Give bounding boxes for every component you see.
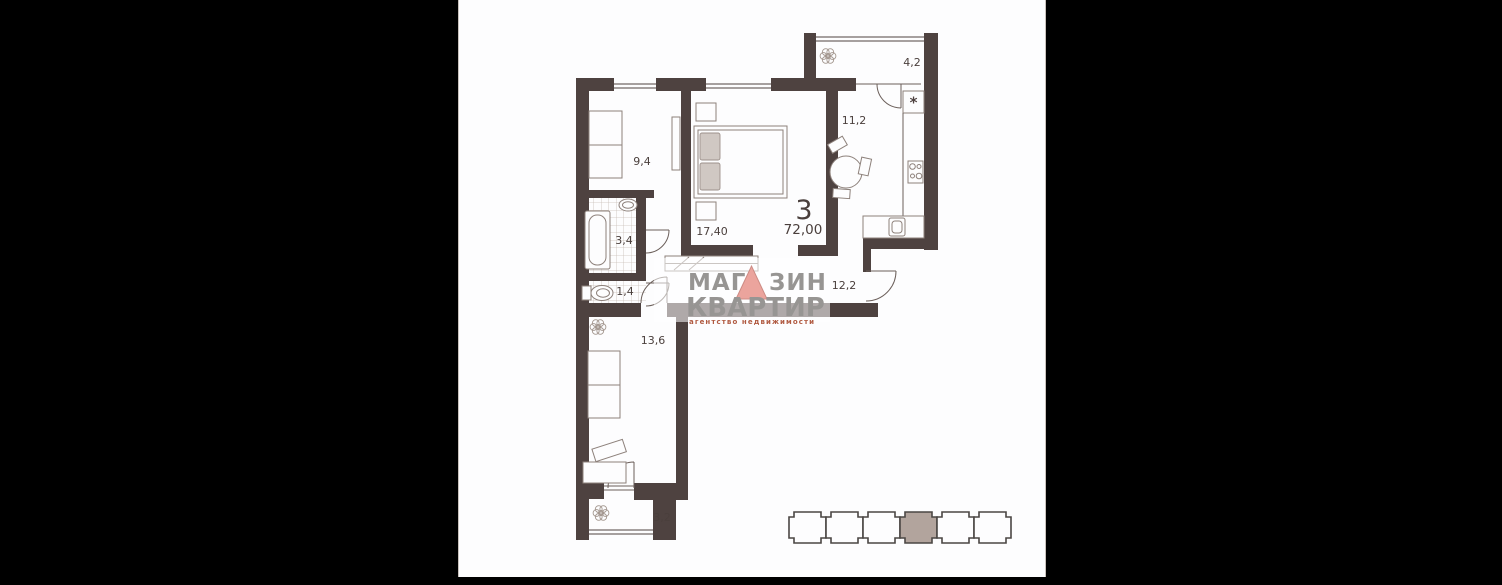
building-section-5	[937, 512, 974, 543]
floor-plan-svg: *	[459, 0, 1045, 577]
building-section-6	[974, 512, 1011, 543]
plant-loggia-top-icon	[820, 49, 836, 64]
page-background: { "page": { "background": "#000000", "pa…	[0, 0, 1502, 585]
window-loggia-bottom	[589, 530, 653, 534]
nightstand-top	[696, 103, 716, 121]
fridge: *	[903, 91, 924, 113]
kitchen-sink-counter	[863, 216, 924, 238]
plant-loggia-bottom-icon	[593, 506, 609, 521]
dining-table	[828, 136, 872, 198]
room-label-hall: 12,2	[832, 279, 857, 292]
bathtub	[585, 211, 610, 269]
window-bedroom	[706, 84, 771, 88]
nightstand-bottom	[696, 202, 716, 220]
stove	[908, 161, 923, 183]
room-label-living: 9,4	[633, 155, 651, 168]
room-label-room-13-6: 13,6	[641, 334, 666, 347]
toilet	[582, 286, 613, 301]
washbasin	[619, 199, 637, 211]
sofa-living	[589, 111, 622, 178]
building-section-3	[863, 512, 900, 543]
shelf-living	[672, 117, 680, 170]
plant-room-13-6-icon	[590, 320, 606, 335]
window-living	[614, 84, 656, 88]
plan-panel: *	[458, 0, 1046, 577]
door-entrance	[866, 271, 896, 301]
fridge-symbol: *	[910, 94, 918, 112]
building-section-4-highlighted	[900, 512, 937, 543]
room-label-bedroom: 17,40	[696, 225, 728, 238]
watermark-logo: МАГ ЗИН КВАРТИР агентство недвижимости	[654, 258, 830, 326]
window-loggia-top	[816, 37, 924, 41]
room-label-loggia-top: 4,2	[903, 56, 921, 69]
double-bed	[694, 126, 787, 198]
door-bathroom	[646, 230, 669, 253]
room-label-loggia-bottom: 3,2	[653, 511, 671, 524]
apartment-total-area: 72,00	[784, 222, 823, 238]
desk-with-chair	[583, 439, 626, 483]
room-label-wc: 1,4	[616, 285, 634, 298]
building-section-2	[826, 512, 863, 543]
room-label-kitchen: 11,2	[842, 114, 867, 127]
room-label-bathroom: 3,4	[615, 234, 633, 247]
watermark-line3: агентство недвижимости	[689, 318, 815, 326]
building-section-1	[789, 512, 826, 543]
building-position-indicator	[789, 512, 1011, 543]
wardrobe-13-6	[588, 351, 620, 418]
door-kitchen-loggia	[877, 84, 901, 108]
